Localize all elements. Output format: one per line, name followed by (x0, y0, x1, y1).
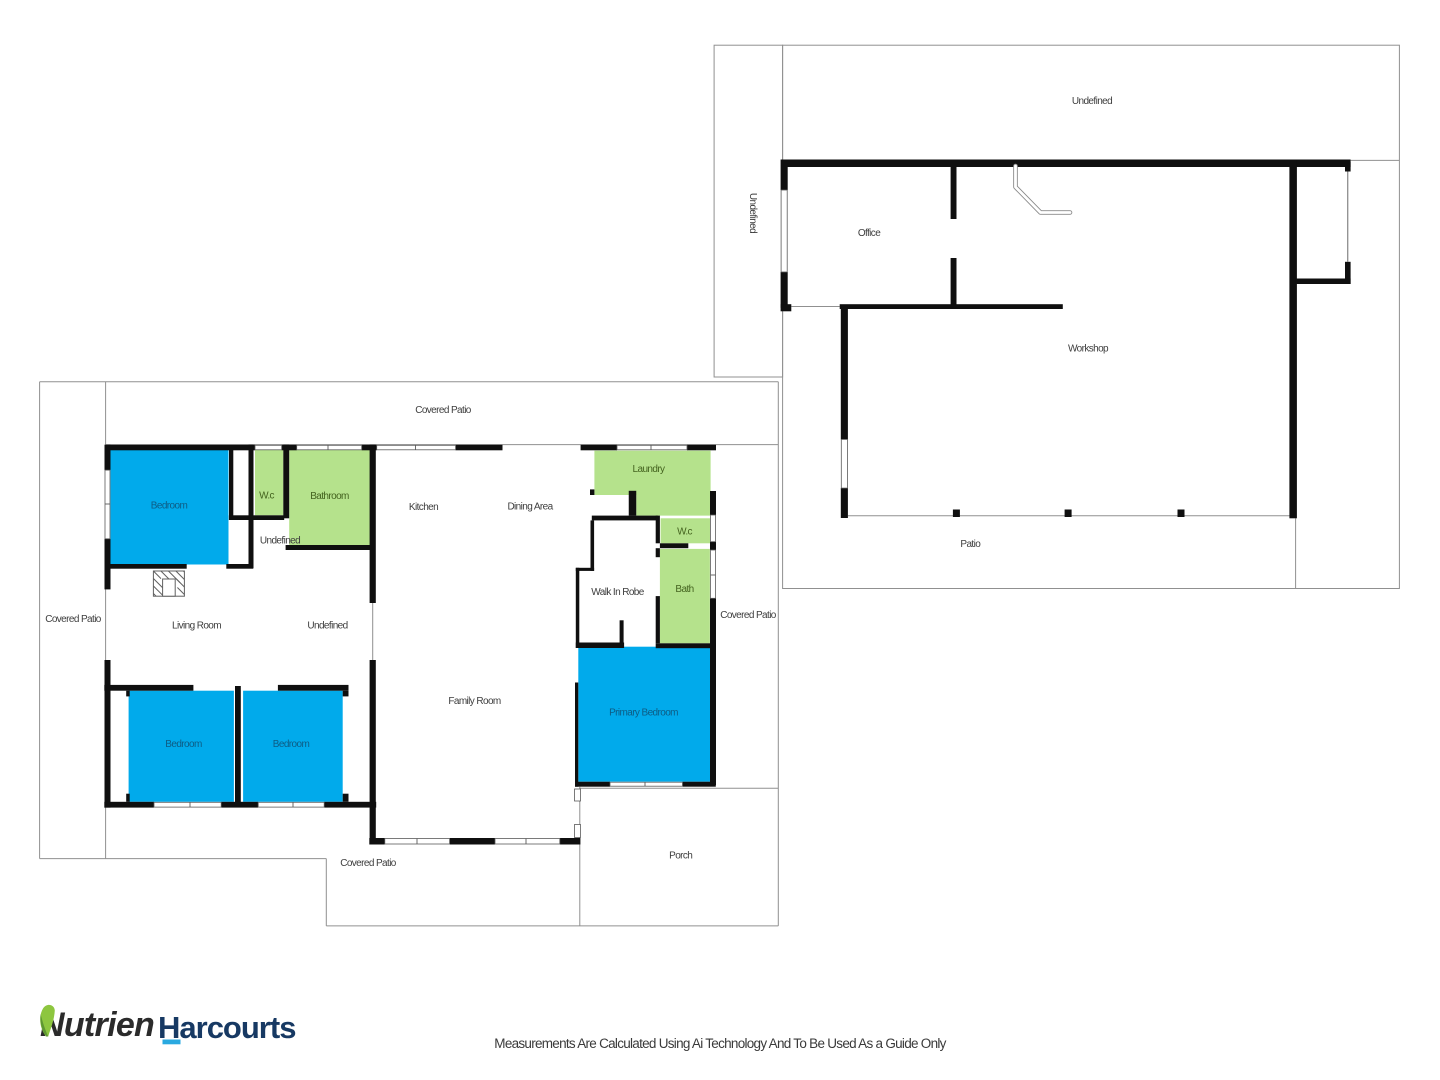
svg-text:Primary Bedroom: Primary Bedroom (609, 708, 678, 719)
svg-text:Undefined: Undefined (1072, 96, 1112, 107)
svg-text:Covered Patio: Covered Patio (340, 858, 397, 869)
svg-text:Undefined: Undefined (747, 193, 758, 233)
svg-text:Dining Area: Dining Area (507, 502, 553, 513)
svg-text:W.c: W.c (259, 490, 274, 501)
svg-text:Workshop: Workshop (1068, 344, 1109, 355)
svg-text:Bedroom: Bedroom (273, 739, 310, 750)
svg-text:Covered Patio: Covered Patio (45, 614, 102, 625)
svg-text:Bathroom: Bathroom (310, 491, 349, 502)
svg-text:Walk In Robe: Walk In Robe (591, 587, 644, 598)
svg-text:Porch: Porch (669, 851, 692, 862)
svg-text:Bedroom: Bedroom (165, 739, 202, 750)
svg-text:Family Room: Family Room (448, 696, 501, 707)
svg-text:Covered Patio: Covered Patio (415, 405, 472, 416)
svg-text:Bedroom: Bedroom (151, 501, 188, 512)
svg-text:Covered Patio: Covered Patio (720, 610, 777, 621)
svg-text:Patio: Patio (960, 539, 981, 550)
svg-text:Kitchen: Kitchen (409, 502, 438, 513)
svg-text:Nutrien: Nutrien (40, 1006, 154, 1044)
svg-text:Measurements Are Calculated Us: Measurements Are Calculated Using Ai Tec… (494, 1036, 946, 1051)
svg-text:Undefined: Undefined (307, 621, 347, 632)
svg-text:Living Room: Living Room (172, 621, 221, 632)
svg-text:W.c: W.c (677, 527, 692, 538)
svg-text:Bath: Bath (675, 584, 693, 595)
svg-text:Undefined: Undefined (260, 536, 300, 547)
svg-text:Office: Office (858, 228, 881, 239)
svg-text:Laundry: Laundry (633, 464, 666, 475)
